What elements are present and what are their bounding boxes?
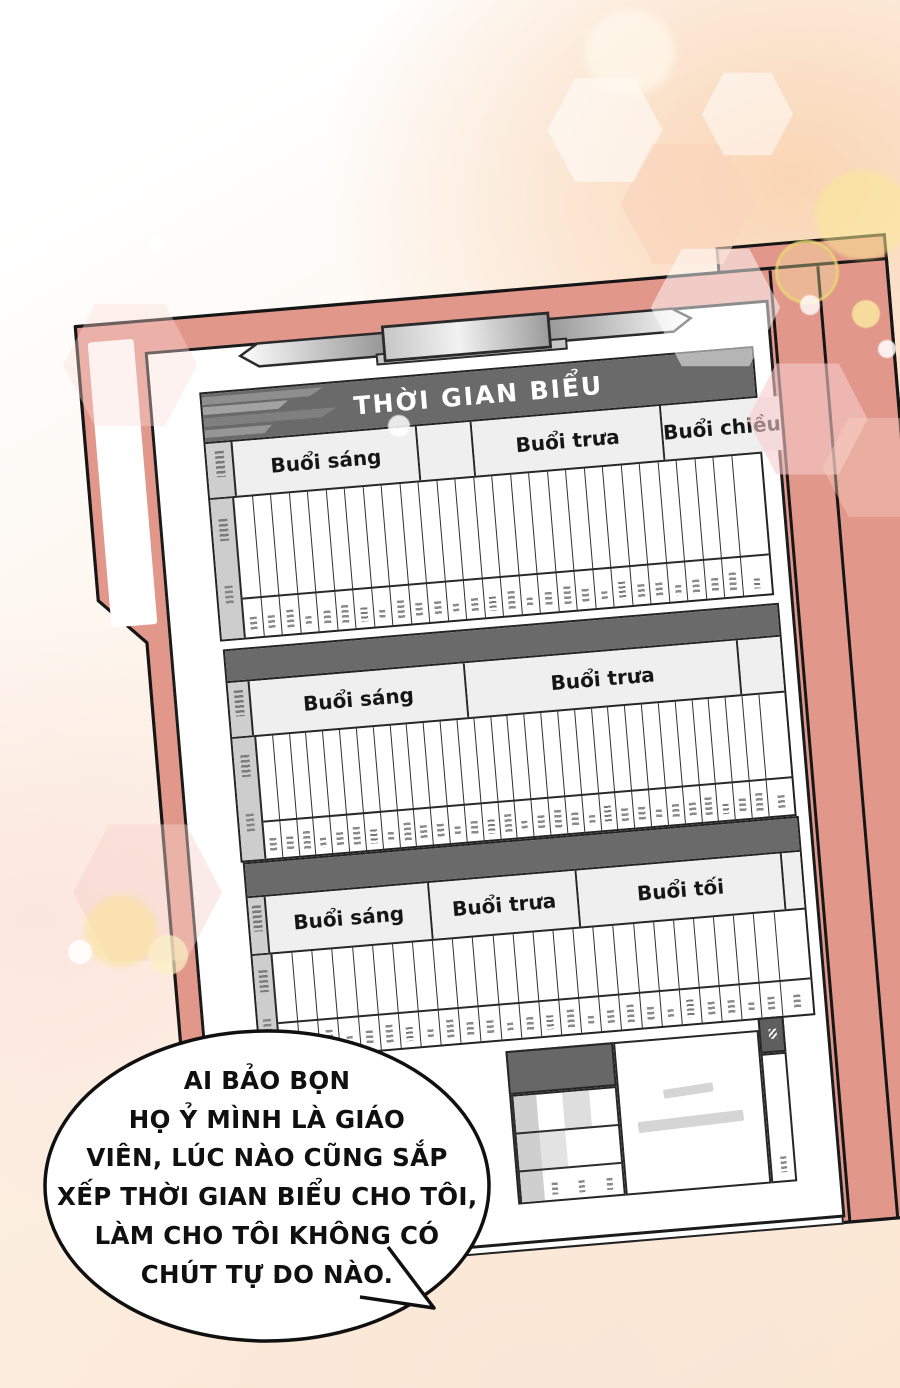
bokeh-light [148, 235, 166, 253]
partial-table-note-cell [613, 1030, 771, 1196]
session-gap-cell [417, 422, 476, 480]
speech-line: HỌ Ỷ MÌNH LÀ GIÁO [57, 1101, 477, 1140]
partial-table [504, 1016, 799, 1207]
bokeh-light [68, 940, 92, 964]
comic-panel: THỜI GIAN BIỂU Buổi sáng Buổi trưa Buổi … [0, 0, 900, 1388]
speech-line: XẾP THỜI GIAN BIỂU CHO TÔI, [57, 1178, 477, 1217]
partial-table-corner-cell [757, 1016, 786, 1054]
session-gap-cell [782, 852, 805, 909]
partial-table-grid [509, 1086, 626, 1205]
speech-line: CHÚT TỰ DO NÀO. [57, 1256, 477, 1295]
bokeh-light [585, 10, 675, 95]
speech-line: VIÊN, LÚC NÀO CŨNG SẮP [57, 1139, 477, 1178]
bokeh-light [700, 70, 795, 158]
row-label-column [206, 442, 237, 498]
row-label-column [228, 681, 254, 737]
speech-line: LÀM CHO TÔI KHÔNG CÓ [57, 1217, 477, 1256]
session-gap-cell [738, 637, 784, 694]
speech-line: AI BẢO BỌN [57, 1062, 477, 1101]
bokeh-light [545, 75, 665, 185]
timetable-1: THỜI GIAN BIỂU Buổi sáng Buổi trưa Buổi … [199, 346, 774, 642]
session-afternoon: Buổi chiều [661, 396, 783, 460]
speech-bubble: AI BẢO BỌN HỌ Ỷ MÌNH LÀ GIÁO VIÊN, LÚC N… [57, 1062, 477, 1294]
